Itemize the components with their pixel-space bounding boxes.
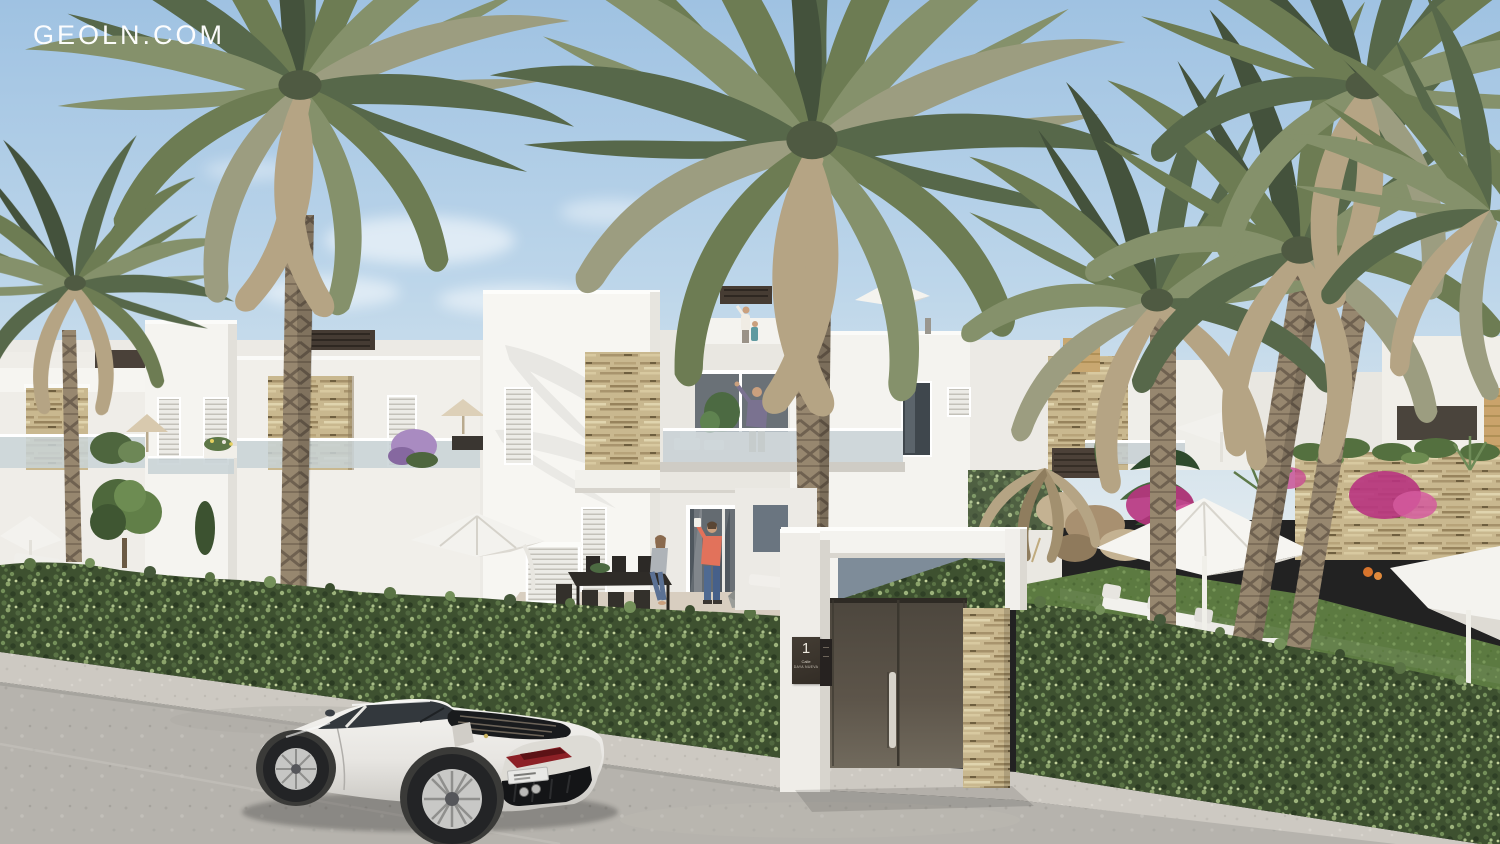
car-mirror [325,710,335,717]
gate-handle [889,672,896,748]
gate-stone-pedestal [963,608,1010,788]
gate-street-label: Calle [792,659,820,664]
watermark-logo: GEOLN.COM [33,20,225,51]
roof-terrace-pergola [720,286,772,304]
property-render-scene: GEOLN.COM 1 Calle DAYA NUEVA [0,0,1500,844]
cypress [195,501,215,555]
townhouse-tower-1 [145,320,250,598]
gate-doors [830,598,967,768]
car-front-wheel [256,730,336,806]
gate-number-plaque: 1 Calle DAYA NUEVA [792,637,820,684]
car-rear-wheel [400,747,504,844]
gate-street-name: DAYA NUEVA [792,665,820,669]
property-render-image [0,0,1500,844]
gate-number: 1 [792,640,820,659]
gate-plaque-side-intercom [820,639,832,686]
